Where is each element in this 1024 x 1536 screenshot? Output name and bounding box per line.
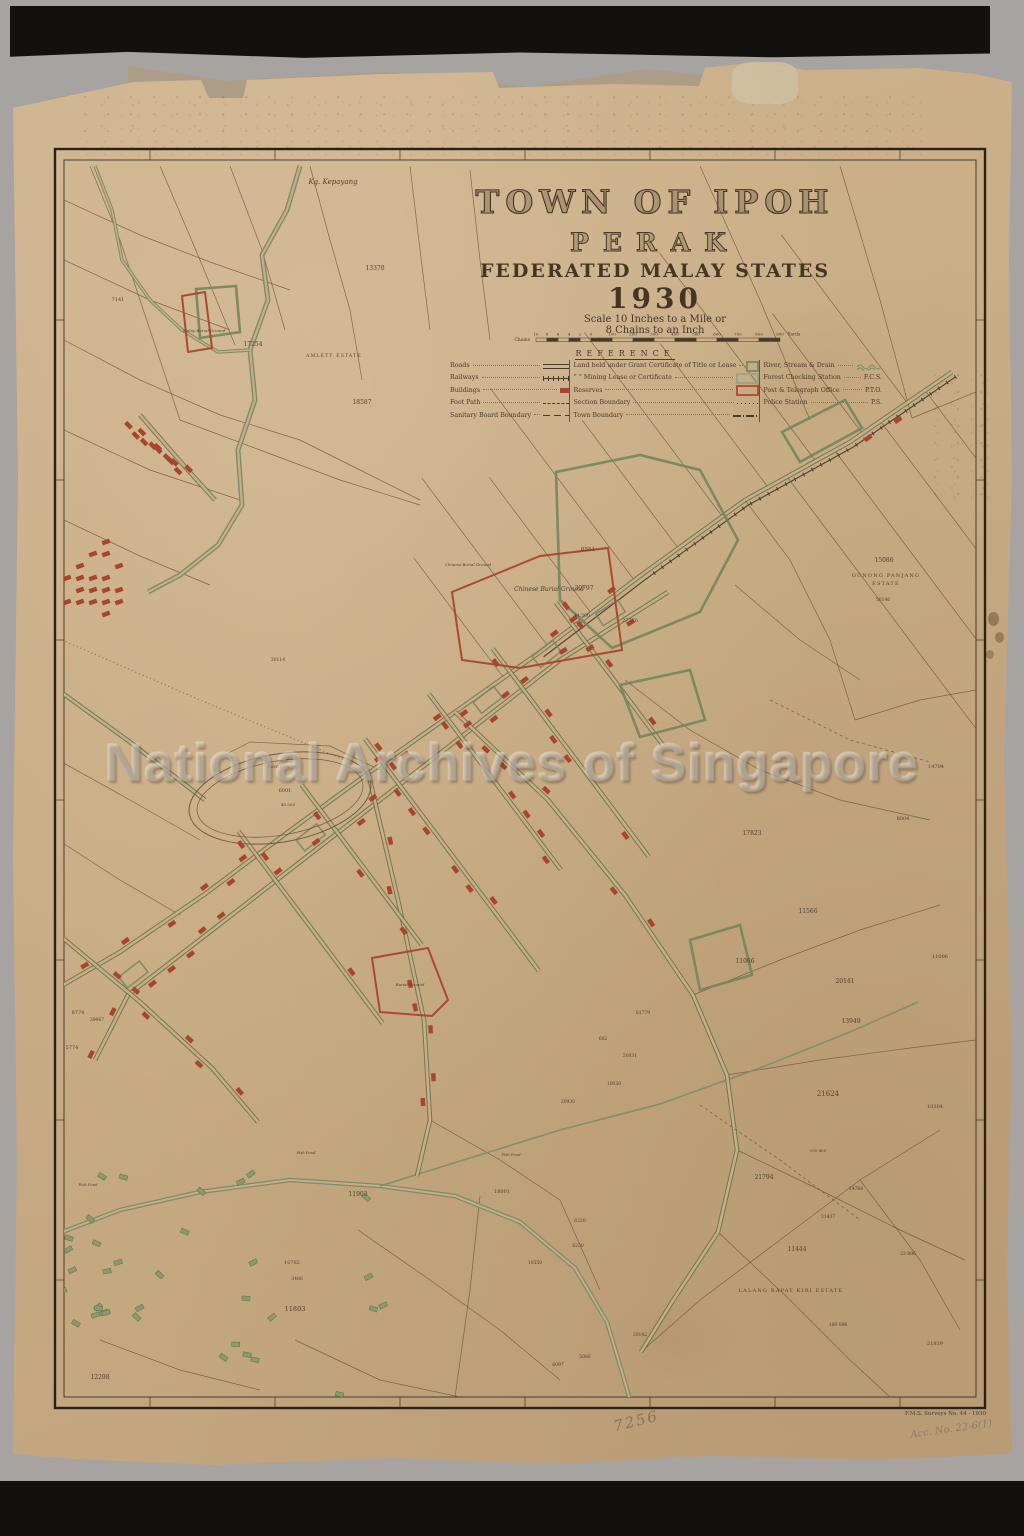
scanned-map-page: Kg. KepayangAMLETT ESTATEChinese Burial … xyxy=(0,0,1024,1536)
map-sheet xyxy=(13,58,1012,1470)
scan-black-band-top xyxy=(10,6,990,60)
scan-black-band-bottom xyxy=(0,1481,1024,1536)
